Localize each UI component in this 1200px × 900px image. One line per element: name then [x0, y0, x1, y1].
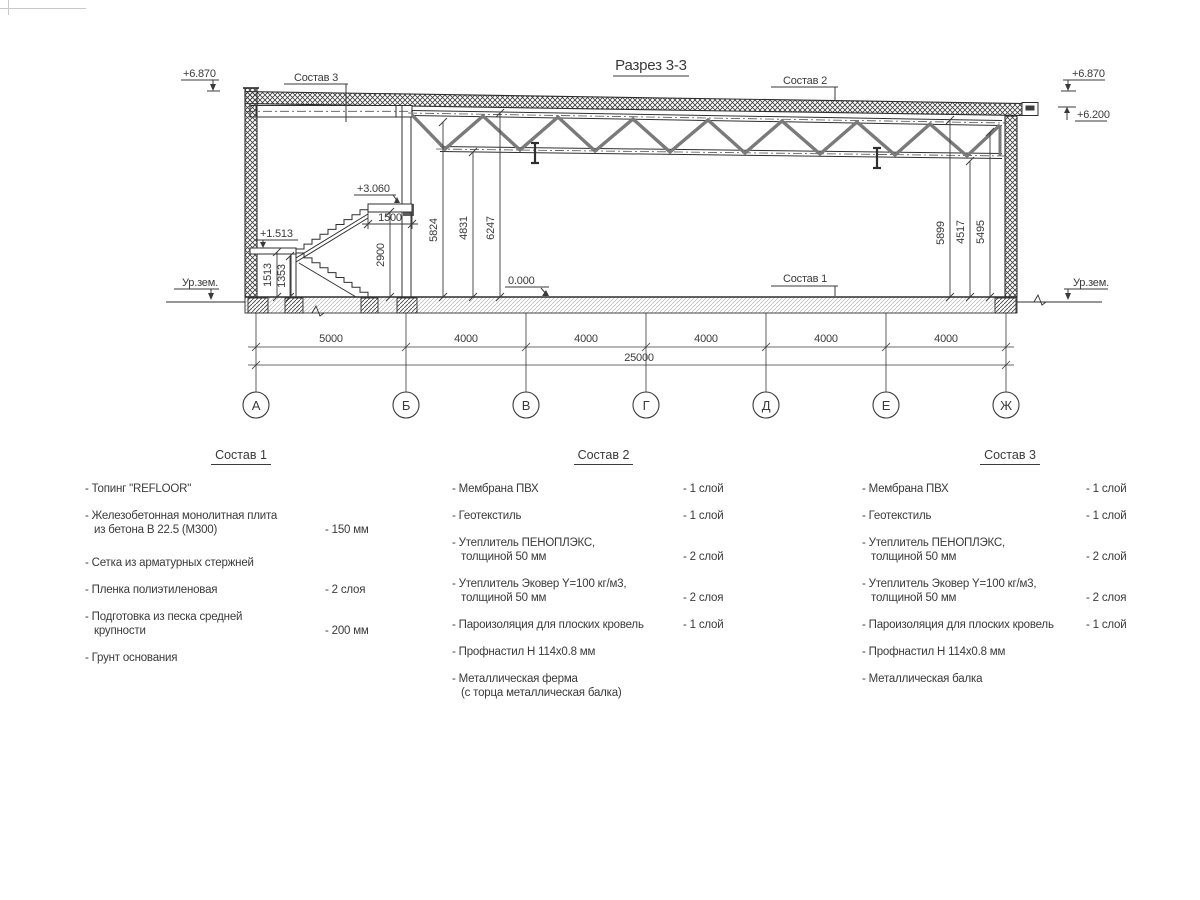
level-left-top: +6.870 [183, 68, 216, 80]
dim-1500: 1500 [378, 212, 402, 224]
list-item: - Пленка полиэтиленовая - 2 слоя [85, 583, 397, 597]
chord-splice [873, 148, 881, 168]
item-value: - 2 слоя [325, 583, 397, 597]
composition-3: Состав 3 - Мембрана ПВХ - 1 слой - Геоте… [862, 448, 1158, 699]
height-dimensions-right: 5899 4517 5495 [935, 116, 994, 301]
item-value: - 200 мм [325, 624, 397, 638]
item-value: - 1 слой [1086, 618, 1158, 632]
list-item: - Мембрана ПВХ - 1 слой [862, 482, 1158, 496]
right-wall [1005, 116, 1017, 297]
item-line: - Мембрана ПВХ [452, 482, 539, 496]
level-right-top: +6.870 [1072, 68, 1105, 80]
level-stair-mid: +1.513 [260, 228, 293, 240]
item-line: - Мембрана ПВХ [862, 482, 949, 496]
span-dim: 4000 [934, 333, 958, 345]
item-line: крупности [85, 624, 242, 638]
dim-5824: 5824 [428, 218, 440, 242]
ground-level-left: Ур.зем. [182, 277, 218, 289]
span-dim: 5000 [319, 333, 343, 345]
dim-1513: 1513 [262, 263, 274, 287]
item-value: - 1 слой [683, 509, 755, 523]
list-item: - Утеплитель Эковер Y=100 кг/м3, толщино… [862, 577, 1158, 605]
dim-4831: 4831 [458, 216, 470, 240]
item-line: - Профнастил Н 114х0.8 мм [452, 645, 595, 659]
composition-3-title: Состав 3 [862, 448, 1158, 462]
list-item: - Профнастил Н 114х0.8 мм [452, 645, 755, 659]
item-line: - Пароизоляция для плоских кровель [452, 618, 644, 632]
span-dim: 4000 [694, 333, 718, 345]
list-item: - Металлическая ферма (с торца металличе… [452, 672, 755, 700]
list-item: - Утеплитель ПЕНОПЛЭКС, толщиной 50 мм -… [862, 536, 1158, 564]
item-line: - Пленка полиэтиленовая [85, 583, 217, 597]
item-value: - 150 мм [325, 523, 397, 537]
item-line: - Профнастил Н 114х0.8 мм [862, 645, 1005, 659]
item-line: - Утеплитель ПЕНОПЛЭКС, [452, 536, 595, 550]
list-item: - Топинг "REFLOOR" [85, 482, 397, 496]
eave-end-plate [1026, 106, 1035, 111]
item-line: - Сетка из арматурных стержней [85, 556, 254, 570]
stair-upper-flight [296, 205, 368, 249]
composition-2: Состав 2 - Мембрана ПВХ - 1 слой - Геоте… [452, 448, 755, 713]
height-dimensions-left: 5824 4831 6247 [428, 109, 504, 301]
item-line: - Металлическая балка [862, 672, 982, 686]
item-value: - 1 слой [1086, 509, 1158, 523]
callout-sostav-3: Состав 3 [294, 72, 338, 84]
item-value: - 2 слой [683, 550, 755, 564]
list-item: - Подготовка из песка средней крупности … [85, 610, 397, 638]
composition-3-title-text: Состав 3 [980, 448, 1040, 465]
item-line: толщиной 50 мм [452, 550, 595, 564]
item-line: (с торца металлическая балка) [452, 686, 622, 700]
item-line: из бетона В 22.5 (М300) [85, 523, 277, 537]
item-line: толщиной 50 мм [862, 591, 1036, 605]
list-item: - Грунт основания [85, 651, 397, 665]
dim-1353: 1353 [276, 264, 288, 288]
span-dim: 4000 [574, 333, 598, 345]
composition-1-title-text: Состав 1 [211, 448, 271, 465]
axis-bubbles: А Б В Г Д Е Ж [243, 392, 1019, 418]
item-value: - 2 слоя [683, 591, 755, 605]
item-line: - Железобетонная монолитная плита [85, 509, 277, 523]
drawing-title: Разрез 3-3 [615, 57, 687, 74]
axis-label-b: Б [402, 398, 410, 413]
dim-4517: 4517 [955, 220, 967, 244]
ground-level-right: Ур.зем. [1073, 277, 1109, 289]
left-wall [243, 88, 259, 297]
level-floor: 0.000 [508, 275, 535, 287]
item-value: - 1 слой [683, 482, 755, 496]
item-line: - Геотекстиль [452, 509, 521, 523]
composition-1: Состав 1 - Топинг "REFLOOR" - Железобето… [85, 448, 397, 678]
item-line: - Грунт основания [85, 651, 177, 665]
span-dim: 4000 [814, 333, 838, 345]
item-value: - 2 слой [1086, 550, 1158, 564]
item-line: - Топинг "REFLOOR" [85, 482, 191, 496]
composition-1-title: Состав 1 [85, 448, 397, 462]
item-line: - Пароизоляция для плоских кровель [862, 618, 1054, 632]
level-right-eave: +6.200 [1077, 109, 1110, 121]
dim-5899: 5899 [935, 221, 947, 245]
drawing-sheet: Разрез 3-3 [0, 0, 1200, 900]
item-value: - 1 слой [683, 618, 755, 632]
list-item: - Сетка из арматурных стержней [85, 556, 397, 570]
steel-beam [246, 106, 416, 118]
stair-upper-landing [368, 204, 412, 212]
list-item: - Геотекстиль - 1 слой [862, 509, 1158, 523]
item-value: - 2 слоя [1086, 591, 1158, 605]
level-stair-upper: +3.060 [357, 183, 390, 195]
steel-truss [408, 111, 1006, 169]
stair-mid-landing [250, 248, 296, 254]
composition-2-title-text: Состав 2 [574, 448, 634, 465]
stair-lower-flight [296, 253, 368, 297]
dim-2900: 2900 [375, 243, 387, 267]
axis-label-a: А [252, 398, 261, 413]
item-line: - Геотекстиль [862, 509, 931, 523]
composition-2-title: Состав 2 [452, 448, 755, 462]
list-item: - Железобетонная монолитная плита из бет… [85, 509, 397, 537]
callout-sostav-2: Состав 2 [783, 75, 827, 87]
item-line: толщиной 50 мм [862, 550, 1005, 564]
list-item: - Утеплитель ПЕНОПЛЭКС, толщиной 50 мм -… [452, 536, 755, 564]
item-line: - Утеплитель ПЕНОПЛЭКС, [862, 536, 1005, 550]
item-line: - Утеплитель Эковер Y=100 кг/м3, [862, 577, 1036, 591]
section-drawing: Разрез 3-3 [0, 0, 1200, 450]
list-item: - Утеплитель Эковер Y=100 кг/м3, толщино… [452, 577, 755, 605]
bottom-dimensions: 5000 4000 4000 4000 4000 4000 25000 [248, 313, 1014, 392]
item-value: - 1 слой [1086, 482, 1158, 496]
total-dim: 25000 [624, 352, 654, 364]
list-item: - Мембрана ПВХ - 1 слой [452, 482, 755, 496]
item-line: - Утеплитель Эковер Y=100 кг/м3, [452, 577, 626, 591]
item-line: толщиной 50 мм [452, 591, 626, 605]
callout-sostav-1: Состав 1 [783, 273, 827, 285]
axis-label-d: Д [762, 398, 771, 413]
list-item: - Профнастил Н 114х0.8 мм [862, 645, 1158, 659]
item-line: - Металлическая ферма [452, 672, 622, 686]
axis-label-zh: Ж [1000, 398, 1012, 413]
item-line: - Подготовка из песка средней [85, 610, 242, 624]
axis-label-v: В [522, 398, 530, 413]
dim-6247: 6247 [485, 216, 497, 240]
axis-label-g: Г [643, 398, 650, 413]
span-dim: 4000 [454, 333, 478, 345]
break-mark [1034, 295, 1046, 305]
list-item: - Геотекстиль - 1 слой [452, 509, 755, 523]
list-item: - Металлическая балка [862, 672, 1158, 686]
list-item: - Пароизоляция для плоских кровель - 1 с… [862, 618, 1158, 632]
axis-label-e: Е [882, 398, 891, 413]
list-item: - Пароизоляция для плоских кровель - 1 с… [452, 618, 755, 632]
dim-5495: 5495 [975, 220, 987, 244]
